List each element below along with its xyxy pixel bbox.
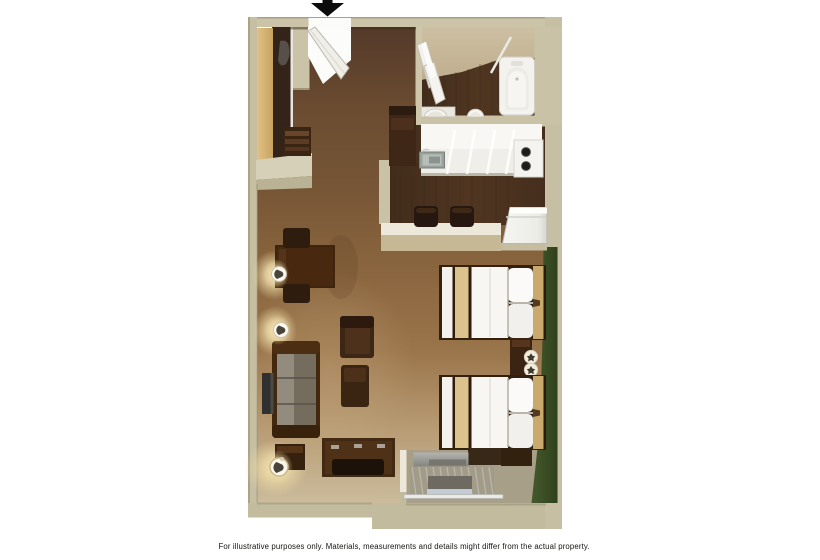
svg-text:For illustrative purposes only: For illustrative purposes only. Material… bbox=[219, 542, 590, 551]
